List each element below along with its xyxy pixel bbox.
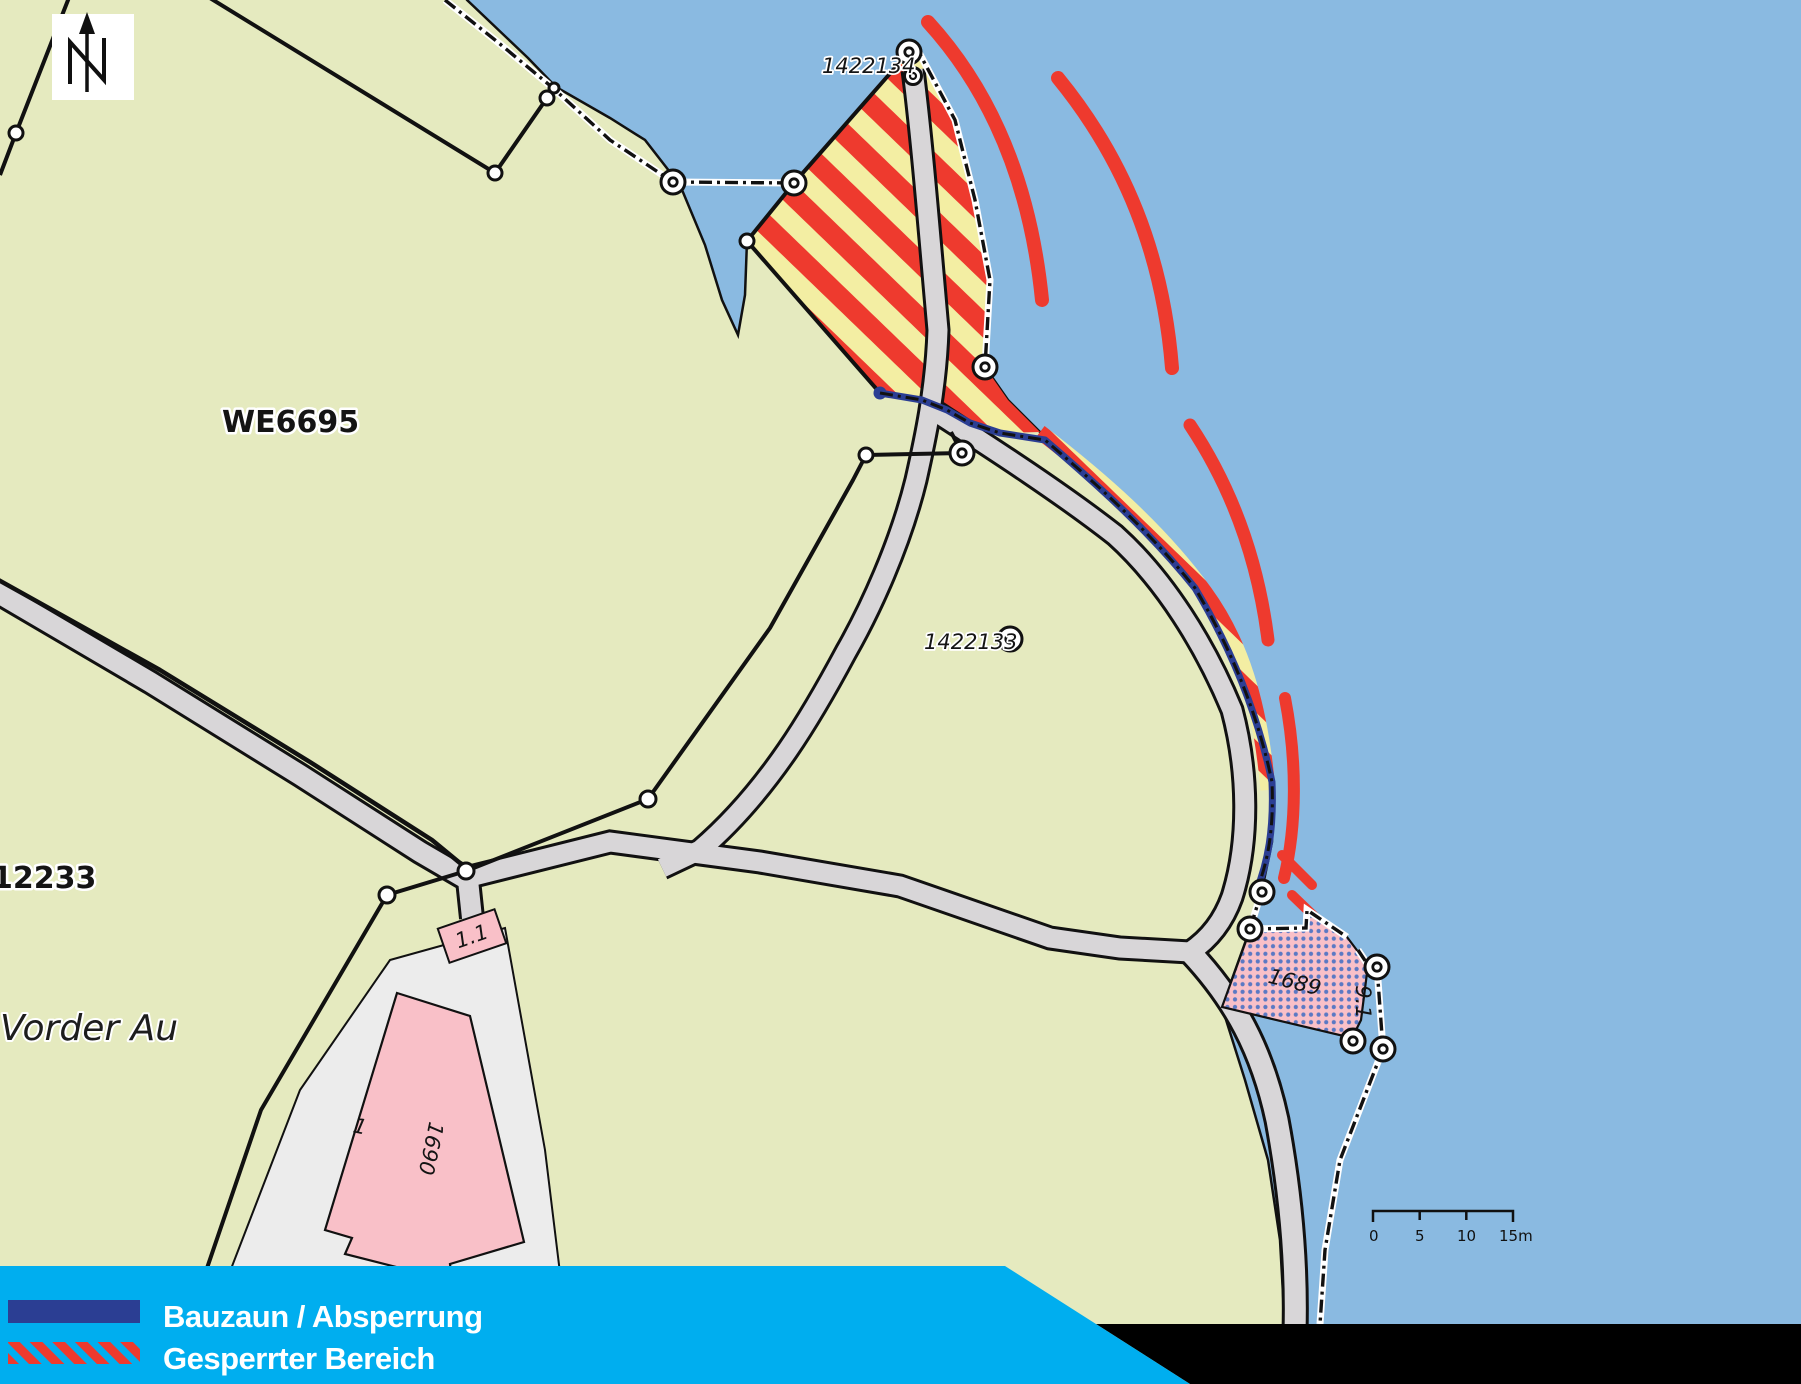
site-plan-map: WE6695 12233 Vorder Au 1422134 1422133 1… bbox=[0, 0, 1801, 1384]
legend-label-fence: Bauzaun / Absperrung bbox=[163, 1299, 483, 1334]
scale-tick-15m: 15m bbox=[1499, 1227, 1533, 1245]
building-label-9-1: 9.1 bbox=[1351, 985, 1375, 1018]
scale-tick-0: 0 bbox=[1369, 1227, 1379, 1245]
scale-tick-5: 5 bbox=[1415, 1227, 1425, 1245]
north-arrow-icon bbox=[52, 12, 134, 100]
legend: Bauzaun / Absperrung Gesperrter Bereich bbox=[0, 1266, 1190, 1384]
legend-swatch-fence bbox=[8, 1300, 140, 1323]
parcel-label-we6695: WE6695 bbox=[222, 405, 359, 440]
legend-swatch-blocked bbox=[8, 1342, 140, 1364]
legend-label-blocked: Gesperrter Bereich bbox=[163, 1341, 435, 1376]
bottom-black-strip bbox=[1096, 1324, 1801, 1384]
point-label-1422134: 1422134 bbox=[822, 54, 916, 78]
map-canvas: WE6695 12233 Vorder Au 1422134 1422133 1… bbox=[0, 0, 1801, 1384]
area-label-vorder-au: Vorder Au bbox=[0, 1008, 178, 1049]
point-label-1422133: 1422133 bbox=[924, 630, 1018, 654]
scale-tick-10: 10 bbox=[1457, 1227, 1476, 1245]
parcel-label-12233: 12233 bbox=[0, 861, 96, 896]
